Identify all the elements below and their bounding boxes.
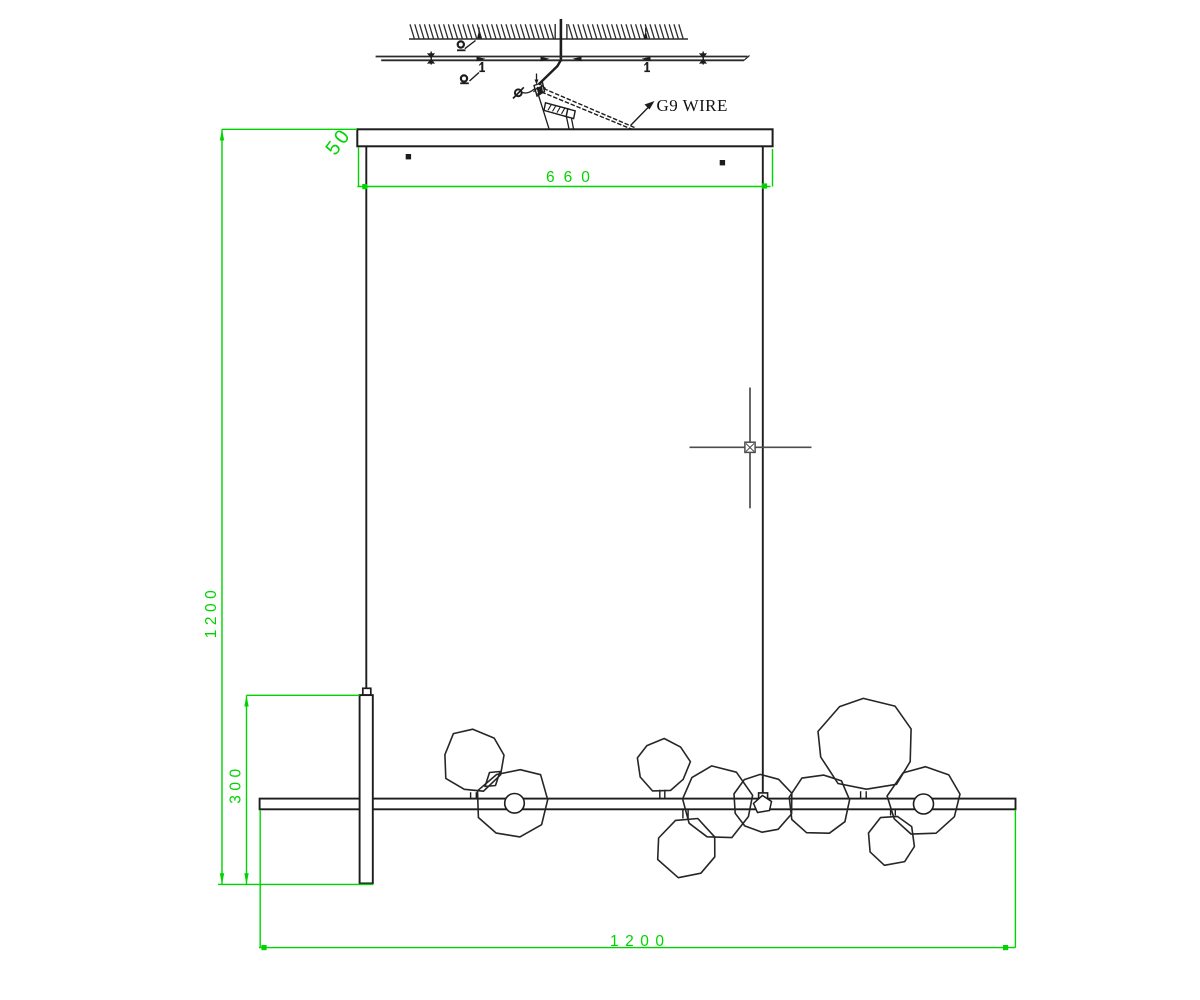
svg-text:660: 660 bbox=[546, 169, 599, 186]
svg-text:G9 WIRE: G9 WIRE bbox=[657, 96, 728, 115]
svg-text:1200: 1200 bbox=[203, 586, 220, 638]
svg-text:1200: 1200 bbox=[610, 933, 670, 950]
svg-text:300: 300 bbox=[228, 764, 245, 803]
